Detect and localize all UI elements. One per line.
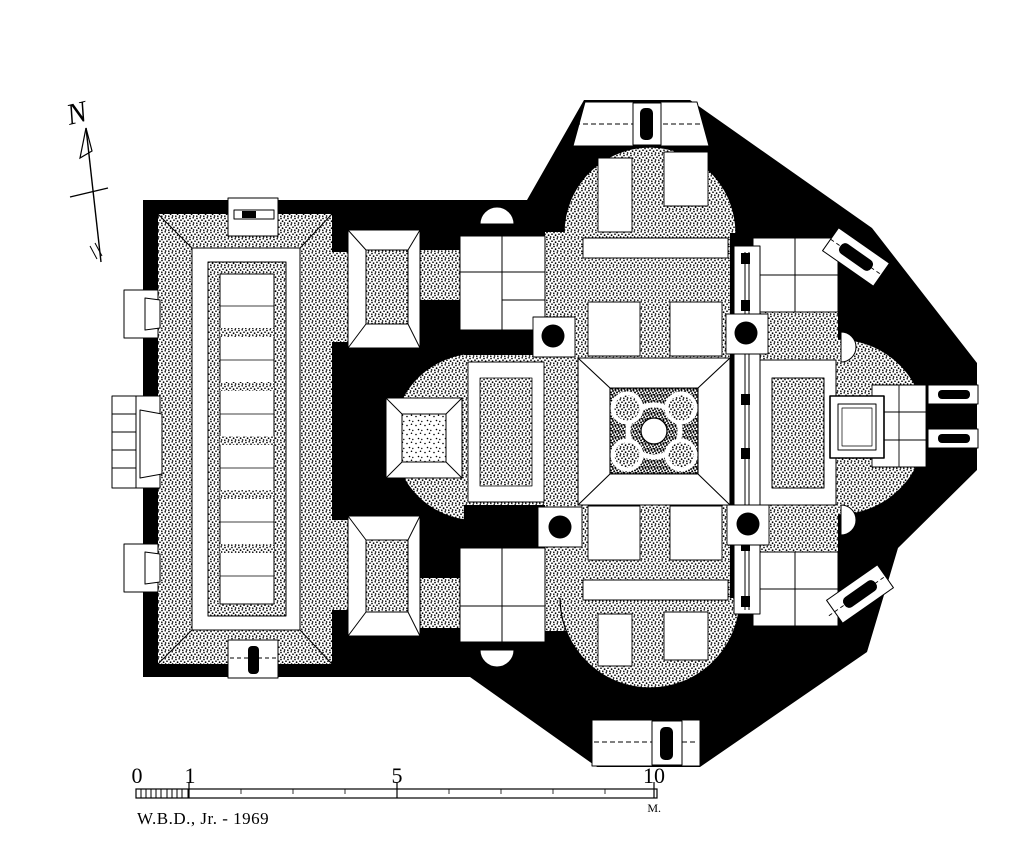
scale-label-0: 0 [132, 763, 143, 788]
column-southwest [549, 516, 572, 539]
column-northeast [735, 322, 758, 345]
scale-bar-icon: 0 1 5 10 M. [132, 763, 666, 815]
door-leaf [248, 646, 259, 674]
west-arm-panel [480, 378, 532, 486]
north-label: N [62, 94, 92, 132]
vault-panel-southwest [348, 516, 420, 636]
chancel-screen [734, 246, 760, 614]
column-northwest [542, 325, 565, 348]
door-leaf [242, 211, 256, 218]
south-porch-door [592, 720, 700, 766]
scale-label-1: 1 [185, 763, 196, 788]
floor-plan-drawing: N 0 1 5 10 M. W.B [0, 0, 1024, 841]
hall-south-door [228, 640, 278, 678]
east-window-north [928, 385, 978, 404]
scale-unit-label: M. [647, 801, 661, 815]
column-southeast [737, 513, 760, 536]
north-porch-door [573, 102, 709, 146]
drawing-sheet: N 0 1 5 10 M. W.B [0, 0, 1024, 841]
west-annex-south [124, 544, 160, 592]
west-annex-middle [112, 396, 162, 488]
vault-panel-northwest [348, 230, 420, 348]
bema-floor [760, 360, 836, 505]
door-leaf [640, 108, 653, 140]
north-arrow-icon: N [62, 94, 108, 262]
hall-north-door [228, 198, 278, 236]
vault-panel-west-conch [386, 398, 462, 478]
room-southeast [753, 552, 838, 626]
west-annex-north [124, 290, 160, 338]
door-leaf [660, 727, 673, 760]
room-northwest [460, 236, 545, 330]
altar [830, 396, 884, 458]
east-window-south [928, 429, 978, 448]
room-southwest [460, 548, 545, 642]
building-plan [112, 100, 978, 767]
credit-line: W.B.D., Jr. - 1969 [137, 809, 269, 828]
